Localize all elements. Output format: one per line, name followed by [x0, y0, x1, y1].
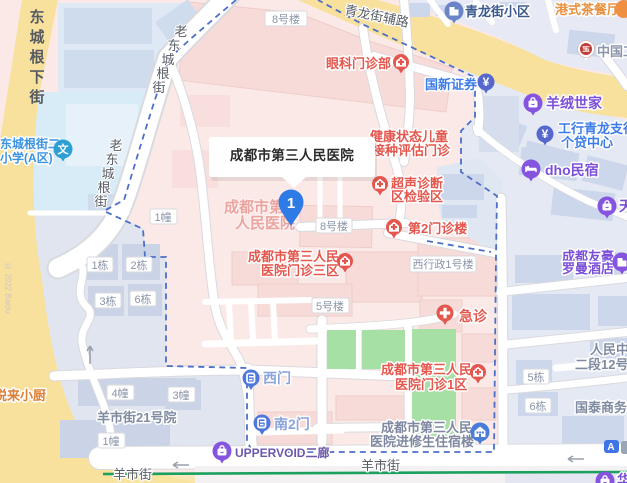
svg-text:个贷中心: 个贷中心	[560, 135, 613, 150]
svg-text:接种评估门诊: 接种评估门诊	[372, 143, 451, 158]
svg-text:港式茶餐厅: 港式茶餐厅	[555, 2, 620, 17]
svg-text:成都市第三人民医院: 成都市第三人民医院	[230, 147, 354, 163]
svg-text:1栋: 1栋	[91, 258, 108, 272]
svg-text:3幢: 3幢	[172, 388, 189, 402]
svg-text:羊市街: 羊市街	[361, 458, 400, 473]
svg-text:下: 下	[29, 69, 44, 86]
svg-text:A: A	[607, 442, 614, 453]
svg-text:第2门诊楼: 第2门诊楼	[408, 221, 467, 236]
svg-text:工行青龙支行: 工行青龙支行	[558, 121, 627, 136]
svg-text:© 2022 Baidu: © 2022 Baidu	[4, 262, 13, 314]
svg-text:街: 街	[28, 88, 44, 106]
svg-text:罗曼酒店: 罗曼酒店	[562, 261, 614, 276]
svg-text:羊市街: 羊市街	[113, 467, 152, 482]
svg-text:国泰商务楼: 国泰商务楼	[575, 400, 627, 415]
svg-text:5号楼: 5号楼	[316, 299, 344, 313]
svg-text:医院门诊1区: 医院门诊1区	[395, 377, 467, 392]
svg-text:dho民宿: dho民宿	[545, 162, 599, 178]
svg-text:老: 老	[174, 24, 187, 39]
svg-text:根: 根	[29, 48, 44, 66]
svg-text:1幢: 1幢	[102, 434, 119, 448]
svg-text:急诊: 急诊	[459, 308, 488, 324]
svg-text:医院门诊三区: 医院门诊三区	[261, 263, 339, 278]
svg-text:8号楼: 8号楼	[272, 12, 300, 26]
svg-text:华: 华	[617, 472, 627, 483]
svg-text:根: 根	[156, 66, 169, 81]
svg-text:国新证券: 国新证券	[425, 77, 478, 92]
svg-text:眼科门诊部: 眼科门诊部	[326, 56, 391, 71]
svg-text:区检验区: 区检验区	[391, 189, 443, 204]
svg-text:街: 街	[94, 194, 107, 209]
svg-text:羊绒世家: 羊绒世家	[546, 95, 603, 111]
svg-text:成都市第三人民: 成都市第三人民	[248, 249, 339, 264]
svg-text:西门: 西门	[263, 370, 291, 386]
svg-text:城: 城	[161, 52, 174, 67]
svg-text:5栋: 5栋	[527, 370, 544, 384]
svg-text:4幢: 4幢	[111, 386, 128, 400]
svg-text:根: 根	[97, 180, 110, 195]
svg-text:青龙街小区: 青龙街小区	[465, 4, 530, 19]
svg-text:东城根街二: 东城根街二	[0, 136, 60, 151]
svg-text:街: 街	[152, 80, 165, 95]
svg-text:2栋: 2栋	[130, 258, 147, 272]
svg-text:3栋: 3栋	[99, 294, 116, 308]
svg-text:城: 城	[101, 166, 114, 181]
svg-text:1: 1	[287, 195, 295, 212]
svg-text:天: 天	[619, 198, 627, 214]
svg-text:东: 东	[105, 152, 118, 167]
svg-text:8号楼: 8号楼	[320, 219, 348, 233]
svg-text:南2门: 南2门	[274, 416, 310, 432]
svg-text:羊市街21号院: 羊市街21号院	[97, 410, 176, 425]
svg-text:成都市第三人民: 成都市第三人民	[381, 362, 472, 377]
svg-text:悦来小厨: 悦来小厨	[0, 388, 46, 403]
svg-text:健康状态儿童: 健康状态儿童	[370, 129, 448, 144]
svg-text:1幢: 1幢	[154, 210, 171, 224]
svg-text:UPPERVOID二廊: UPPERVOID二廊	[235, 445, 329, 460]
svg-text:小学(A区): 小学(A区)	[0, 150, 53, 165]
svg-text:6栋: 6栋	[134, 292, 151, 306]
svg-text:成都市第三人民: 成都市第三人民	[381, 420, 472, 435]
svg-text:中国工: 中国工	[597, 44, 627, 59]
svg-text:城: 城	[29, 28, 44, 46]
svg-text:人民中路: 人民中路	[590, 342, 627, 357]
svg-text:东: 东	[167, 38, 180, 53]
svg-text:西行政1号楼: 西行政1号楼	[412, 257, 473, 271]
svg-text:6栋: 6栋	[529, 399, 546, 413]
svg-text:东: 东	[29, 8, 44, 26]
svg-text:老: 老	[109, 138, 122, 153]
svg-text:医院进修生住宿楼: 医院进修生住宿楼	[370, 434, 474, 449]
svg-text:二段12号院: 二段12号院	[575, 357, 627, 372]
